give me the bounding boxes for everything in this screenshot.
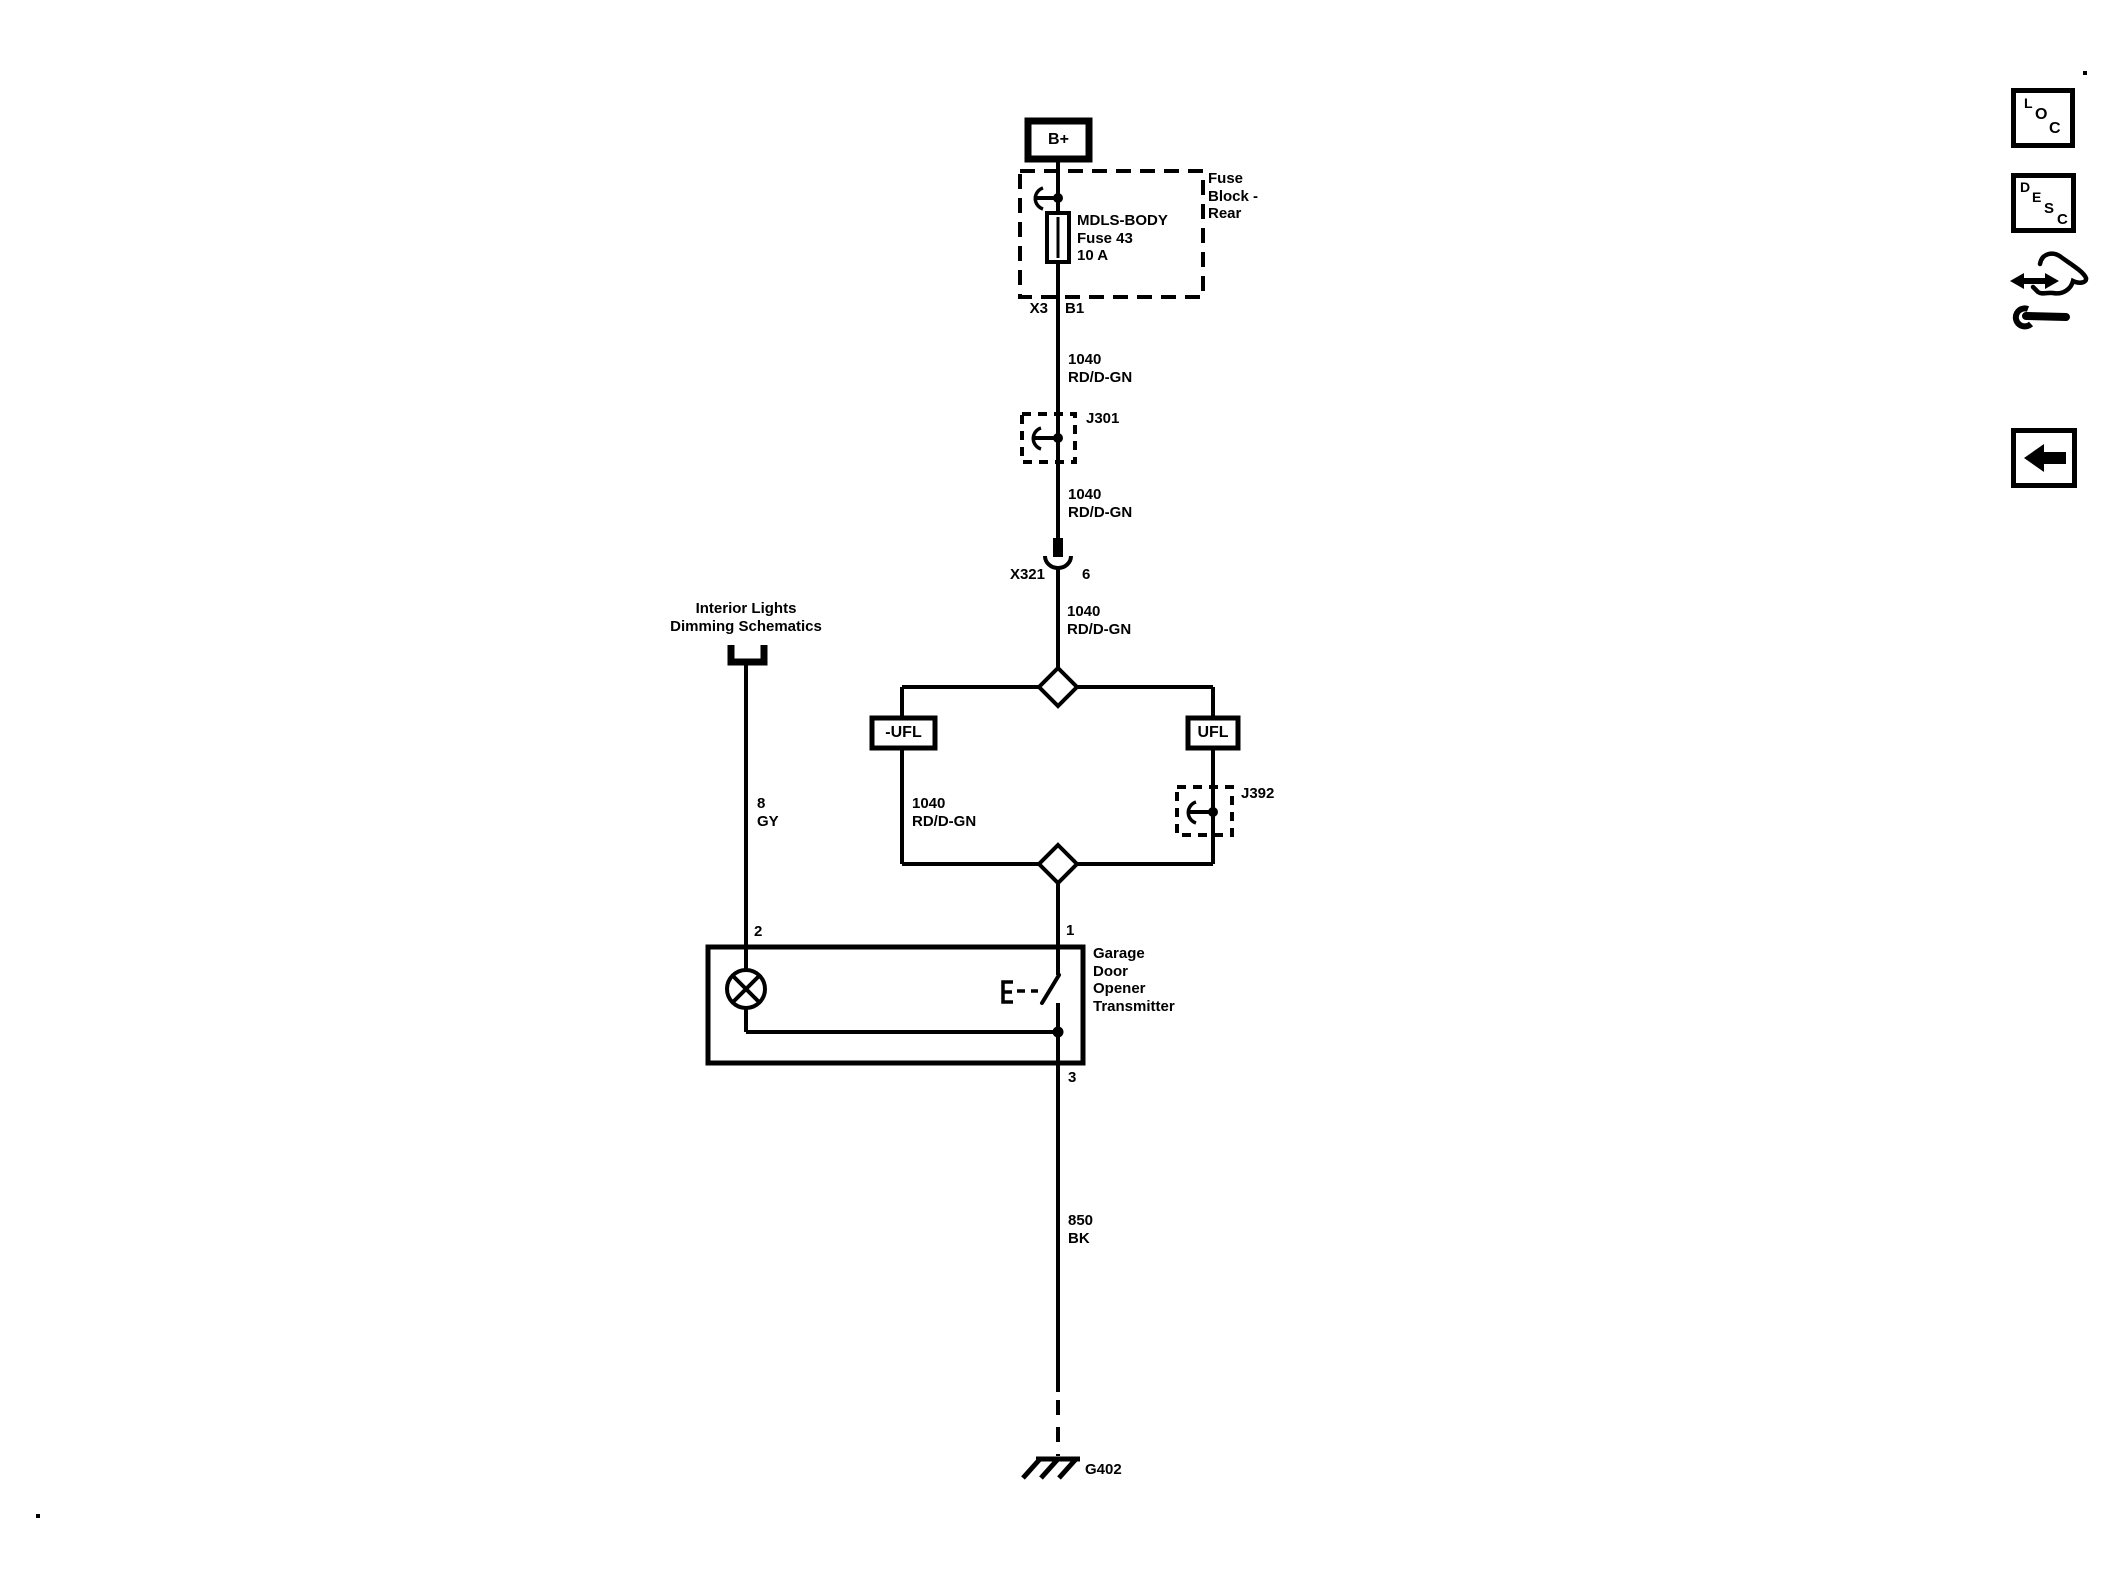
battery-feed-label: B+ bbox=[1028, 121, 1089, 159]
splice-j301-symbol bbox=[1022, 414, 1075, 462]
fuse-label-line3: 10 A bbox=[1077, 247, 1168, 265]
fuse-label-line2: Fuse 43 bbox=[1077, 230, 1168, 248]
transmitter-box bbox=[708, 947, 1083, 1063]
fuse-label: MDLS-BODY Fuse 43 10 A bbox=[1077, 212, 1168, 265]
connector-x321-pin: 6 bbox=[1082, 566, 1090, 584]
loc-letter-o: O bbox=[2035, 106, 2047, 124]
ground-symbol bbox=[1023, 1459, 1080, 1478]
transmitter-name-line4: Transmitter bbox=[1093, 998, 1175, 1016]
wire-label-feed-1: 1040 RD/D-GN bbox=[1068, 351, 1132, 386]
back-arrow-icon bbox=[2016, 433, 2072, 483]
wire-label-left-branch: 1040 RD/D-GN bbox=[912, 795, 976, 830]
transmitter-name: Garage Door Opener Transmitter bbox=[1093, 945, 1175, 1015]
desc-letter-s: S bbox=[2044, 200, 2054, 217]
circuit-number: 1040 bbox=[1067, 603, 1131, 621]
transmitter-pin-2: 2 bbox=[754, 923, 762, 941]
wire-label-feed-2: 1040 RD/D-GN bbox=[1068, 486, 1132, 521]
schematic-repair-icon[interactable] bbox=[1997, 245, 2097, 335]
transmitter-name-line3: Opener bbox=[1093, 980, 1175, 998]
option-right-label: UFL bbox=[1188, 718, 1238, 748]
wire-label-ground: 850 BK bbox=[1068, 1212, 1093, 1247]
transmitter-name-line1: Garage bbox=[1093, 945, 1175, 963]
desc-letter-d: D bbox=[2020, 179, 2030, 195]
branch-merge bbox=[902, 845, 1213, 947]
circuit-number: 1040 bbox=[1068, 351, 1132, 369]
splice-j392-symbol bbox=[1177, 787, 1232, 835]
fuse-label-line1: MDLS-BODY bbox=[1077, 212, 1168, 230]
wire-color: RD/D-GN bbox=[912, 813, 976, 831]
fuse-block-connector-label: X3 bbox=[1012, 300, 1048, 318]
ground-label: G402 bbox=[1085, 1461, 1122, 1479]
wire-label-feed-3: 1040 RD/D-GN bbox=[1067, 603, 1131, 638]
transmitter-name-line2: Door bbox=[1093, 963, 1175, 981]
fuse-block-pin-label: B1 bbox=[1065, 300, 1084, 318]
fuse-symbol bbox=[1047, 213, 1069, 262]
wire-color: GY bbox=[757, 813, 779, 831]
loc-letter-c: C bbox=[2049, 120, 2061, 138]
splice-j392-label: J392 bbox=[1241, 785, 1274, 803]
option-left-label: -UFL bbox=[872, 718, 935, 748]
connector-x321-symbol bbox=[1045, 538, 1071, 568]
loc-letter-l: L bbox=[2024, 95, 2033, 111]
wiring-diagram-page: B+ Fuse Block - Rear MDLS-BODY Fuse 43 1… bbox=[0, 0, 2124, 1593]
desc-letter-c: C bbox=[2057, 211, 2068, 228]
page-artifact-dot bbox=[36, 1514, 40, 1518]
branch-split bbox=[902, 668, 1213, 864]
offpage-reference-line1: Interior Lights bbox=[645, 600, 847, 618]
transmitter-pin-1: 1 bbox=[1066, 922, 1074, 940]
circuit-number: 1040 bbox=[1068, 486, 1132, 504]
desc-button[interactable]: D E S C bbox=[2011, 173, 2076, 233]
circuit-number: 8 bbox=[757, 795, 779, 813]
wire-color: RD/D-GN bbox=[1067, 621, 1131, 639]
connector-x321-label: X321 bbox=[990, 566, 1045, 584]
wire-color: BK bbox=[1068, 1230, 1093, 1248]
schematic-graphics bbox=[0, 0, 2124, 1593]
wire-color: RD/D-GN bbox=[1068, 369, 1132, 387]
transmitter-pin-3: 3 bbox=[1068, 1069, 1076, 1087]
fuse-block-name-line1: Fuse bbox=[1208, 170, 1258, 188]
fuse-block-name: Fuse Block - Rear bbox=[1208, 170, 1258, 223]
wire-color: RD/D-GN bbox=[1068, 504, 1132, 522]
circuit-number: 1040 bbox=[912, 795, 976, 813]
desc-letter-e: E bbox=[2032, 189, 2041, 205]
offpage-reference-line2: Dimming Schematics bbox=[645, 618, 847, 636]
loc-button[interactable]: L O C bbox=[2011, 88, 2075, 148]
fuse-block-name-line2: Block - bbox=[1208, 188, 1258, 206]
offpage-reference-label: Interior Lights Dimming Schematics bbox=[645, 600, 847, 635]
fuse-block-name-line3: Rear bbox=[1208, 205, 1258, 223]
splice-j301-label: J301 bbox=[1086, 410, 1119, 428]
page-artifact-dot bbox=[2083, 71, 2087, 75]
circuit-number: 850 bbox=[1068, 1212, 1093, 1230]
back-button[interactable] bbox=[2011, 428, 2077, 488]
wire-label-dimming: 8 GY bbox=[757, 795, 779, 830]
